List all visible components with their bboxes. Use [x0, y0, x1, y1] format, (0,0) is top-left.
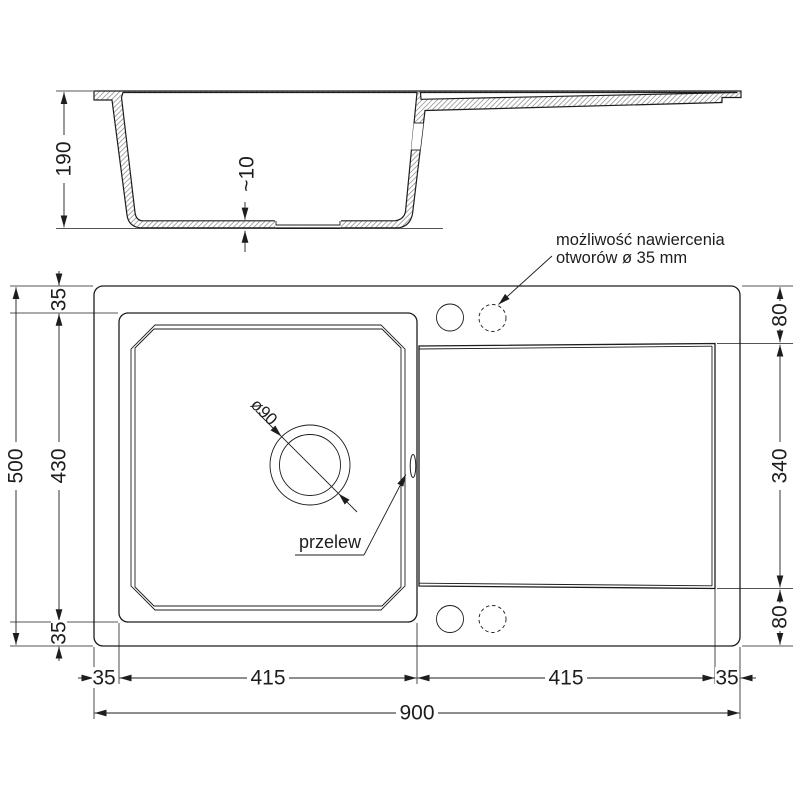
- total-height-label: 500: [5, 448, 28, 483]
- sink-cross-section: [94, 91, 741, 228]
- bowl-height-label: 430: [48, 448, 71, 483]
- bowl-floor: [135, 329, 401, 606]
- overflow-gap-section: [411, 123, 423, 150]
- bowl-width-label: 415: [250, 667, 285, 690]
- left-dimensions: 500 430 35 35: [5, 271, 119, 661]
- right-top-margin-label: 80: [769, 303, 792, 326]
- bottom-margin-left-label: 35: [92, 667, 115, 690]
- depth-label: 190: [53, 141, 76, 176]
- side-view-section: 190 ~10: [53, 91, 742, 252]
- bottom-thickness-label: ~10: [236, 156, 259, 192]
- bowl-rim-outer: [119, 313, 417, 622]
- total-width-label: 900: [399, 702, 434, 725]
- bowl-rim-inner: [131, 325, 405, 610]
- holes-annotation: możliwość nawiercenia otworów ø 35 mm: [499, 231, 726, 305]
- faucet-hole-bottom: [437, 606, 464, 633]
- optional-hole-top: [479, 305, 506, 332]
- bowl: [119, 313, 417, 622]
- right-bottom-margin-label: 80: [769, 605, 792, 628]
- bottom-margin-right-label: 35: [715, 667, 738, 690]
- margin-bottom-label: 35: [48, 621, 71, 644]
- drainer-width-label: 415: [548, 667, 583, 690]
- drain-diameter-label: ø90: [247, 395, 281, 429]
- right-dimensions: 80 340 80: [717, 286, 793, 646]
- sink-technical-drawing: 190 ~10: [0, 0, 800, 800]
- margin-top-label: 35: [48, 288, 71, 311]
- overflow-label: przelew: [299, 532, 362, 552]
- faucet-hole-top: [437, 304, 464, 331]
- overflow-slot: [410, 455, 416, 478]
- top-view: możliwość nawiercenia otworów ø 35 mm ø9…: [5, 231, 794, 725]
- drainer-height-label: 340: [769, 448, 792, 483]
- optional-hole-bottom: [479, 606, 506, 633]
- holes-note-line2: otworów ø 35 mm: [556, 249, 687, 267]
- drainer-board: [419, 344, 715, 589]
- holes-note-line1: możliwość nawiercenia: [556, 231, 726, 249]
- dimension-bottom-thickness: ~10: [236, 156, 259, 252]
- overflow-annotation: przelew: [295, 475, 406, 556]
